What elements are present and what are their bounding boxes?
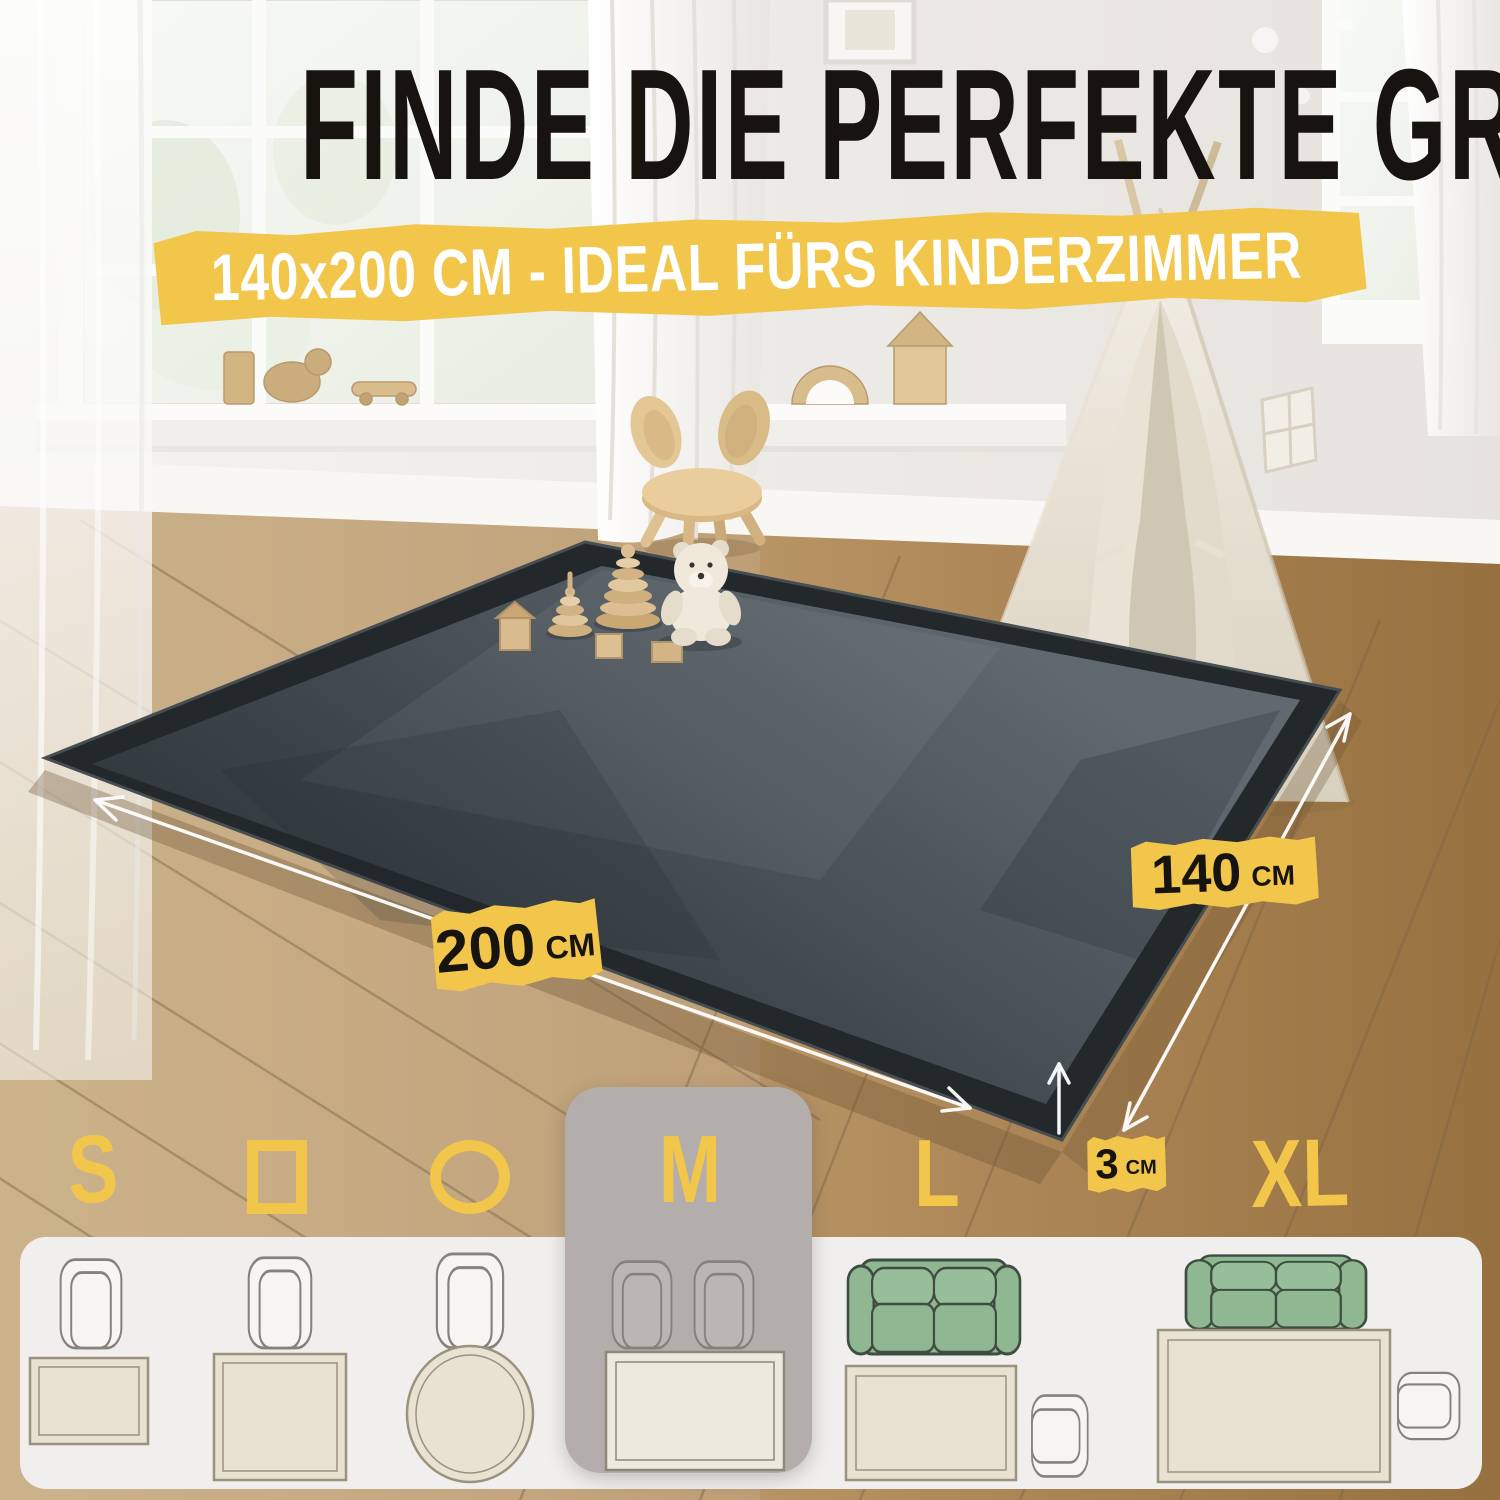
size-option-m[interactable]: M bbox=[643, 1128, 737, 1212]
size-option-rectangle-icon[interactable] bbox=[247, 1140, 307, 1214]
size-option-xl[interactable]: XL bbox=[1240, 1131, 1360, 1218]
width-unit: CM bbox=[1251, 850, 1296, 893]
thickness-dimension-badge: 3 CM bbox=[1085, 1133, 1166, 1194]
width-value: 140 bbox=[1150, 841, 1242, 906]
sheer-curtain-icon bbox=[0, 0, 152, 1080]
size-option-s[interactable]: S bbox=[49, 1126, 137, 1214]
headline: FINDE DIE PERFEKTE GRÖSSE bbox=[300, 46, 1200, 204]
size-option-l[interactable]: L bbox=[894, 1132, 980, 1216]
size-option-circle-icon[interactable] bbox=[430, 1140, 510, 1214]
product-size-infographic: FINDE DIE PERFEKTE GRÖSSE 140x200 CM - I… bbox=[0, 0, 1500, 1500]
thickness-unit: CM bbox=[1125, 1148, 1157, 1180]
length-unit: CM bbox=[543, 914, 597, 967]
thickness-value: 3 bbox=[1095, 1140, 1119, 1188]
length-value: 200 bbox=[432, 909, 538, 986]
width-dimension-badge: 140 CM bbox=[1127, 833, 1319, 914]
